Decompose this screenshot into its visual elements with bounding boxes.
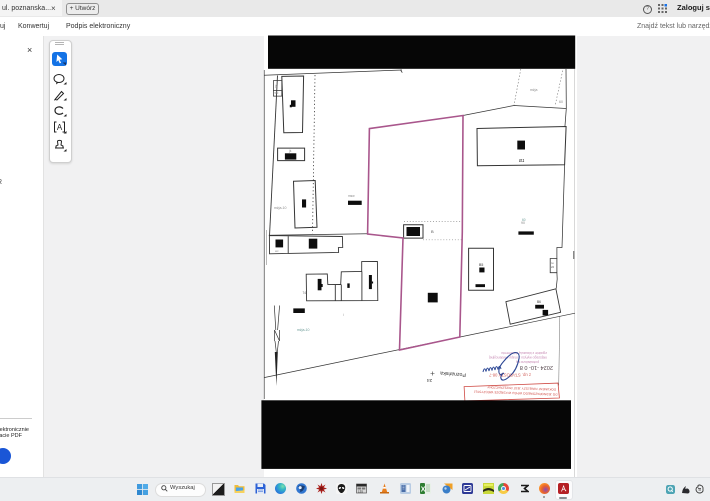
svg-text:wc: wc: [275, 91, 279, 95]
svg-text:jś: jś: [274, 84, 278, 88]
svg-text:74: 74: [303, 291, 307, 295]
svg-text:zgodnie z klauzulą dokumentu: zgodnie z klauzulą dokumentu: [501, 351, 547, 355]
svg-text:60: 60: [559, 100, 563, 104]
svg-text:60: 60: [522, 218, 526, 222]
svg-text:Poznańska: Poznańska: [440, 370, 466, 378]
svg-text:jś: jś: [288, 149, 292, 153]
svg-text:135: 135: [358, 489, 363, 493]
svg-text:A: A: [57, 123, 63, 132]
svg-text:msw: msw: [348, 194, 355, 198]
svg-text:z up. STAROSTY 08-7: z up. STAROSTY 08-7: [488, 373, 531, 378]
svg-text:mżja-10: mżja-10: [274, 206, 287, 210]
svg-text:B6: B6: [537, 300, 541, 304]
svg-text:2024 -10- 0 8: 2024 -10- 0 8: [520, 364, 553, 370]
svg-text:22: 22: [551, 265, 555, 269]
svg-text:niejszego wyrysu z mapy ewiden: niejszego wyrysu z mapy ewidencyjnej: [489, 355, 547, 359]
svg-text:24: 24: [426, 378, 432, 383]
svg-text:wc: wc: [275, 249, 279, 253]
svg-text:B5: B5: [479, 263, 483, 267]
svg-text:mżja: mżja: [530, 88, 537, 92]
svg-text:mżja-10: mżja-10: [297, 328, 310, 332]
svg-text:poświadcza się: poświadcza się: [516, 360, 539, 364]
svg-text:X: X: [421, 487, 426, 494]
svg-text:B: B: [431, 229, 434, 234]
svg-text:B1: B1: [519, 158, 525, 163]
svg-text:i: i: [343, 313, 344, 317]
